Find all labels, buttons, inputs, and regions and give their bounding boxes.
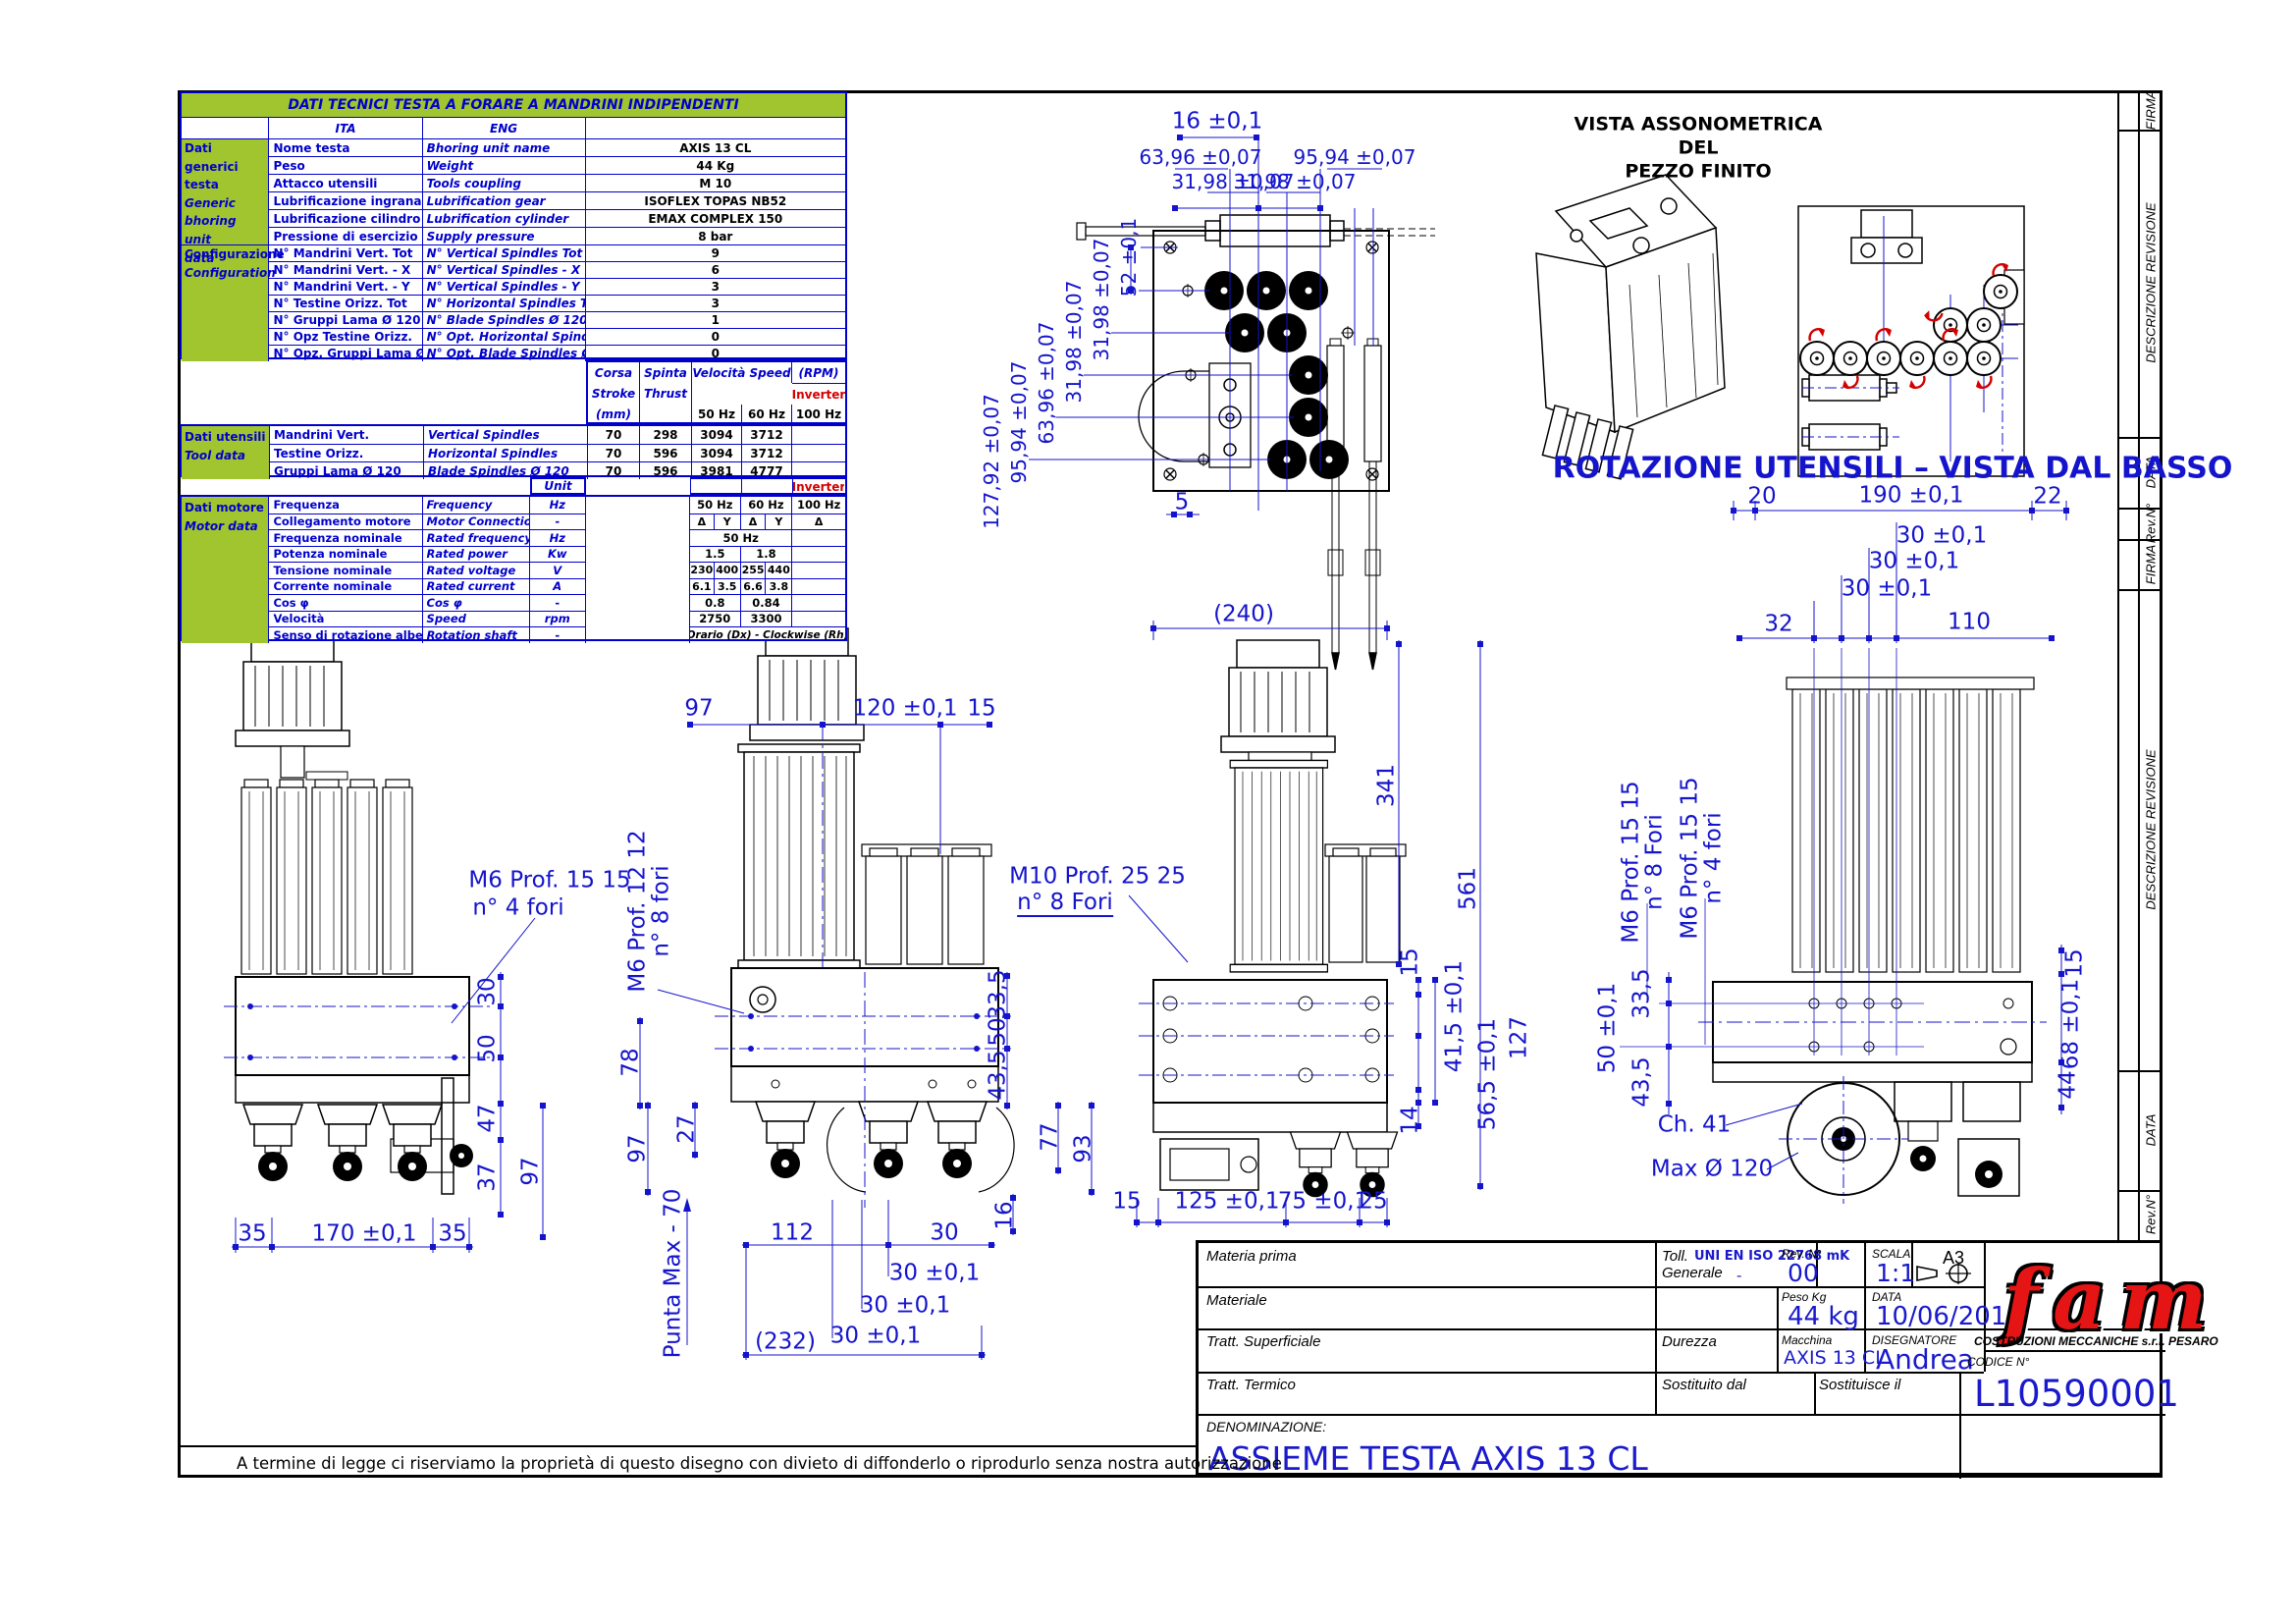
strip-label-descrizione: DESCRIZIONE REVISIONE [2144, 749, 2159, 909]
dim-label: 97 [684, 698, 713, 721]
strip-line [2117, 1070, 2163, 1072]
toll-value: UNI EN ISO 22768 mK [1694, 1249, 1849, 1264]
table-cell: EMAX COMPLEX 150 [586, 209, 845, 227]
hole-note: n° 8 fori [651, 865, 673, 956]
peso-value: 44 kg [1788, 1302, 1859, 1331]
dim-label: 93 [1073, 1134, 1095, 1163]
hole-note: M6 Prof. 15 15 [468, 870, 630, 893]
dim-label: 31,98 ±0,07 [1092, 239, 1111, 361]
hdr-100hz: 100 Hz [792, 405, 845, 424]
dim-label: 75 ±0,1 [1278, 1191, 1368, 1214]
dim-label: 63,96 ±0,07 [1140, 147, 1262, 167]
rev-value: 00 [1788, 1259, 1819, 1287]
dim-label: 97 [627, 1134, 650, 1163]
table-cell: 60 Hz [741, 497, 793, 514]
table-cell: N° Vertical Spindles - X [423, 261, 586, 278]
table-cell: 3094 [692, 444, 742, 461]
table-cell: 0 [586, 328, 845, 345]
table-cell: Frequenza [269, 497, 422, 514]
table-cell: 50 Hz [689, 529, 792, 546]
dim-label: 35 [238, 1223, 266, 1246]
dim-label: 32 [1764, 614, 1792, 636]
table-cell: 3.8 [766, 578, 792, 595]
table-cell: N° Opz. Gruppi Lama Ø 120 [269, 345, 422, 361]
table-cell: Rated power [423, 546, 530, 563]
dim-label: 16 [994, 1201, 1017, 1229]
col-header-ita: ITA [269, 117, 422, 138]
table-cell: Lubrification gear [423, 191, 586, 209]
field-materia-prima: Materia prima [1206, 1248, 1297, 1265]
table-cell: Attacco utensili [269, 174, 422, 191]
table-cell [182, 117, 269, 138]
strip-line [2138, 90, 2140, 1240]
dim-label: (232) [755, 1331, 816, 1354]
table-cell: Collegamento motore [269, 514, 422, 530]
dim-label: 95,94 ±0,07 [1009, 361, 1029, 484]
table-title: DATI TECNICI TESTA A FORARE A MANDRINI I… [182, 93, 845, 117]
hdr-speed: Velocità Speed [692, 361, 792, 383]
table-cell: Rated frequency [423, 529, 530, 546]
macchina-value: AXIS 13 CL [1784, 1347, 1886, 1369]
table-cell: 1.5 [689, 546, 741, 563]
table-cell: rpm [530, 611, 586, 627]
table-cell: 440 [766, 562, 792, 578]
hdr-60hz: 60 Hz [742, 405, 792, 424]
disclaimer-box: A termine di legge ci riserviamo la prop… [178, 1445, 1196, 1478]
table-cell: 255 [741, 562, 767, 578]
table-cell [792, 426, 845, 444]
strip-line [2117, 90, 2119, 1240]
dim-label: Max Ø 120 [1651, 1159, 1773, 1181]
table-cell: 6.6 [741, 578, 767, 595]
dim-label: 15 [967, 698, 995, 721]
table-cell [692, 383, 742, 405]
table-cell: 6.1 [689, 578, 715, 595]
table-cell: 6 [586, 261, 845, 278]
table-cell: A [530, 578, 586, 595]
table-cell: 230 [689, 562, 715, 578]
table-cell: 596 [640, 461, 692, 479]
table-cell: 70 [588, 426, 640, 444]
strip-line [2117, 1190, 2163, 1192]
table-cell [742, 383, 792, 405]
dim-label: 33,5 [1631, 968, 1654, 1018]
iso-title-3: PEZZO FINITO [1625, 163, 1771, 182]
table-cell [792, 546, 845, 563]
strip-line [2117, 437, 2163, 439]
table-cell: Hz [530, 497, 586, 514]
dim-label: 30 [477, 977, 500, 1005]
dim-label: 27 [676, 1114, 699, 1143]
table-cell [792, 611, 845, 627]
table-cell: Nome testa [269, 138, 422, 156]
field-sostituito-dal: Sostituito dal [1662, 1377, 1746, 1393]
iso-title-1: VISTA ASSONOMETRICA [1575, 116, 1823, 135]
disclaimer-text: A termine di legge ci riserviamo la prop… [237, 1454, 1282, 1473]
scala-value: 1:1 [1876, 1259, 1915, 1287]
hole-note: M6 Prof. 15 15 [1621, 781, 1643, 943]
hole-note: M6 Prof. 15 15 [1680, 777, 1702, 939]
table-cell: 0.84 [741, 594, 793, 611]
table-cell: Δ [741, 514, 767, 530]
group-label-config: ConfigurazioneConfiguration [182, 244, 266, 282]
table-cell: - [530, 594, 586, 611]
dim-label: 52 ±0,1 [1119, 218, 1139, 297]
table-cell: Corrente nominale [269, 578, 422, 595]
table-cell: Y [715, 514, 741, 530]
strip-line [2117, 589, 2163, 591]
dim-label: 190 ±0,1 [1858, 485, 1963, 508]
table-cell: Kw [530, 546, 586, 563]
table-cell: Hz [530, 529, 586, 546]
dim-label: 30 ±0,1 [830, 1326, 921, 1348]
dim-label: 30 ±0,1 [889, 1263, 980, 1285]
dim-label: 41,5 ±0,1 [1444, 960, 1467, 1072]
table-cell: Testine Orizz. [270, 444, 424, 461]
drawing-sheet: FIRMA DESCRIZIONE REVISIONE DATA Rev.N° … [0, 0, 2296, 1624]
table-cell [792, 562, 845, 578]
strip-label-data: DATA [2144, 1114, 2159, 1147]
tool-data: Mandrini Vert.Vertical Spindles702983094… [180, 424, 847, 477]
table-cell [792, 594, 845, 611]
table-cell: 1.8 [741, 546, 793, 563]
hole-note: n° 8 Fori [1017, 892, 1113, 917]
table-cell: N° Opz Testine Orizz. [269, 328, 422, 345]
dim-label: 112 [771, 1222, 814, 1245]
field-denominazione-label: DENOMINAZIONE: [1206, 1419, 1326, 1435]
table-cell: Frequency [423, 497, 530, 514]
table-cell: N° Gruppi Lama Ø 120 [269, 311, 422, 328]
table-cell: 0.8 [689, 594, 741, 611]
table-cell: 70 [588, 461, 640, 479]
dim-label: 31,98 ±0,07 [1064, 281, 1084, 404]
dim-label: 30 ±0,1 [1842, 578, 1932, 601]
table-cell: N° Vertical Spindles - Y [423, 278, 586, 295]
table-cell: Motor Connection [423, 514, 530, 530]
dim-label: Ch. 41 [1658, 1114, 1732, 1137]
strip-label-firma: FIRMA [2144, 90, 2159, 130]
table-cell: Pressione di esercizio [269, 227, 422, 244]
dim-label: 5 [1175, 492, 1190, 514]
dim-label: 35 [438, 1223, 466, 1246]
table-cell: Horizontal Spindles [424, 444, 588, 461]
table-cell: Y [766, 514, 792, 530]
table-cell: Rated voltage [423, 562, 530, 578]
dim-label: 22 [2033, 486, 2061, 509]
hole-note: M10 Prof. 25 25 [1009, 866, 1186, 889]
table-cell: Speed [423, 611, 530, 627]
dim-label: 30 [930, 1222, 958, 1245]
table-cell: 3094 [692, 426, 742, 444]
table-cell [792, 444, 845, 461]
table-cell: Gruppi Lama Ø 120 [270, 461, 424, 479]
dim-label: 97 [520, 1157, 543, 1185]
table-cell: Potenza nominale [269, 546, 422, 563]
table-cell: Frequenza nominale [269, 529, 422, 546]
dim-label: 56,5 ±0,1 [1477, 1018, 1500, 1130]
hdr-rpm: (RPM) [792, 361, 845, 383]
table-cell: N° Opt. Blade Spindles Ø 120 [423, 345, 586, 361]
dim-label: 16 ±0,1 [1172, 111, 1262, 134]
toll-dash: - [1736, 1267, 1741, 1284]
strip-label-firma: FIRMA [2144, 545, 2159, 584]
dim-label: 30 ±0,1 [1896, 525, 1987, 548]
table-cell: Cos φ [423, 594, 530, 611]
dim-label: 50 ±0,1 [1597, 983, 1620, 1073]
strip-label-rev: Rev.N° [2144, 1195, 2159, 1234]
field-tratt-termico: Tratt. Termico [1206, 1377, 1296, 1393]
field-codice: CODICE N° [1967, 1355, 2029, 1369]
table-cell: Tensione nominale [269, 562, 422, 578]
table-cell [742, 479, 793, 495]
table-cell: 400 [715, 562, 741, 578]
table-cell: Lubrificazione cilindro [269, 209, 422, 227]
dim-label: 170 ±0,1 [311, 1223, 416, 1246]
table-cell: 2750 [689, 611, 741, 627]
table-cell: 3 [586, 295, 845, 311]
strip-label-rev: Rev.N° [2144, 504, 2159, 543]
table-cell: 9 [586, 244, 845, 261]
dim-label: 43,5 [988, 1050, 1010, 1100]
hole-note: M6 Prof. 12 12 [627, 830, 650, 992]
dim-label: 341 [1376, 764, 1399, 807]
field-macchina: Macchina [1782, 1333, 1832, 1347]
table-cell: N° Vertical Spindles Tot [423, 244, 586, 261]
hdr-mm: (mm) [588, 405, 640, 424]
table-cell: N° Mandrini Vert. Tot [269, 244, 422, 261]
motor-data: FrequenzaFrequencyHz50 Hz60 Hz100 Hz Col… [180, 495, 847, 641]
dim-label: 25 [1359, 1191, 1387, 1214]
dim-label: 50 [477, 1034, 500, 1062]
table-cell: 3712 [742, 426, 792, 444]
table-cell: ISOFLEX TOPAS NB52 [586, 191, 845, 209]
hdr-thrust: Thrust [640, 383, 692, 405]
table-cell: 100 Hz [792, 497, 845, 514]
table-cell: 596 [640, 444, 692, 461]
dim-label: 20 [1747, 486, 1776, 509]
table-cell: - [530, 626, 586, 643]
dim-label: 43,5 [1631, 1056, 1654, 1107]
table-cell: N° Opt. Horizontal Spindles [423, 328, 586, 345]
codice-value: L10590001 [1974, 1373, 2179, 1415]
dim-label: 15 [1400, 947, 1422, 976]
dim-label: 37 [477, 1163, 500, 1191]
dim-label: 110 [1948, 612, 1991, 634]
table-cell: 298 [640, 426, 692, 444]
table-cell: - [530, 514, 586, 530]
hole-note: n° 8 Fori [1644, 814, 1667, 910]
data-value: 10/06/2010 [1876, 1302, 2023, 1331]
hdr-50hz: 50 Hz [692, 405, 742, 424]
dim-label: 15 [1112, 1191, 1141, 1214]
hdr-stroke: Stroke [588, 383, 640, 405]
table-cell: 3 [586, 278, 845, 295]
table-cell: N° Testine Orizz. Tot [269, 295, 422, 311]
hdr-n [640, 405, 692, 424]
title-block: Materia prima Materiale Tratt. Superfici… [1196, 1240, 2163, 1476]
table-cell: 3712 [742, 444, 792, 461]
table-cell: Cos φ [269, 594, 422, 611]
strip-label-descrizione: DESCRIZIONE REVISIONE [2144, 202, 2159, 362]
rotation-view-title: ROTAZIONE UTENSILI – VISTA DAL BASSO [1553, 452, 2233, 486]
table-cell: Lubrification cylinder [423, 209, 586, 227]
table-cell: Weight [423, 156, 586, 174]
dim-label: 44 [2057, 1070, 2080, 1099]
dim-label: 15 [2064, 948, 2087, 977]
projection-symbol-icon [1915, 1263, 1980, 1284]
dim-label: 50 [988, 1017, 1010, 1046]
table-cell: N° Blade Spindles Ø 120 [423, 311, 586, 328]
group-label-motor: Dati motoreMotor data [182, 497, 266, 535]
table-cell: 50 Hz [689, 497, 741, 514]
field-materiale: Materiale [1206, 1292, 1267, 1309]
dim-label: 31,98 ±0,07 [1234, 172, 1357, 191]
dim-label: 68 ±0,1 [2060, 979, 2083, 1069]
table-cell [792, 578, 845, 595]
dim-label: (240) [1213, 604, 1274, 626]
table-cell: Δ [792, 514, 845, 530]
iso-title-2: DEL [1679, 139, 1719, 158]
table-cell: Vertical Spindles [424, 426, 588, 444]
dim-label: 78 [620, 1048, 643, 1076]
table-cell: Senso di rotazione albero [269, 626, 422, 643]
table-cell: Δ [689, 514, 715, 530]
dim-label: 561 [1458, 867, 1480, 910]
col-header-eng: ENG [423, 117, 586, 138]
field-toll-generale: Generale [1662, 1265, 1723, 1281]
table-cell: 70 [588, 444, 640, 461]
hdr-corsa: Corsa [588, 361, 640, 383]
dim-label: 125 ±0,1 [1174, 1191, 1279, 1214]
motor-inverter: Inverter [793, 479, 844, 495]
table-cell [691, 479, 742, 495]
dim-label: 120 ±0,1 [852, 698, 957, 721]
table-cell: 44 Kg [586, 156, 845, 174]
company-name: COSTRUZIONI MECCANICHE s.r.l. PESARO [1974, 1334, 2165, 1348]
table-cell: Bhoring unit name [423, 138, 586, 156]
table-cell: 3.5 [715, 578, 741, 595]
tool-header: Corsa Spinta Velocità Speed (RPM) Stroke… [586, 359, 847, 424]
strip-line [2117, 130, 2163, 132]
field-durezza: Durezza [1662, 1333, 1717, 1350]
table-cell: Peso [269, 156, 422, 174]
dim-label: 77 [1040, 1122, 1062, 1151]
hdr-spinta: Spinta [640, 361, 692, 383]
field-tratt-superficiale: Tratt. Superficiale [1206, 1333, 1320, 1350]
table-cell: Supply pressure [423, 227, 586, 244]
dim-label: 33,5 [988, 969, 1010, 1019]
table-cell: Velocità [269, 611, 422, 627]
hole-note: n° 4 fori [472, 897, 563, 920]
table-cell: Lubrificazione ingranaggi [269, 191, 422, 209]
field-toll: Toll. [1662, 1248, 1688, 1265]
table-cell: 3300 [741, 611, 793, 627]
dim-label: 47 [477, 1104, 500, 1132]
table-cell: N° Mandrini Vert. - X [269, 261, 422, 278]
dim-label: 14 [1400, 1106, 1422, 1134]
field-sostituisce-il: Sostituisce il [1819, 1377, 1900, 1393]
table-cell: AXIS 13 CL [586, 138, 845, 156]
table-cell: Orario (Dx) - Clockwise (Rh) [689, 626, 845, 643]
table-cell: Rotation shaft [423, 626, 530, 643]
table-cell: V [530, 562, 586, 578]
dim-label: 127,92 ±0,07 [982, 394, 1001, 529]
hole-note: n° 4 fori [1703, 812, 1726, 903]
hdr-inverter: Inverter [792, 383, 845, 405]
table-cell [792, 529, 845, 546]
tech-data-table: DATI TECNICI TESTA A FORARE A MANDRINI I… [180, 91, 847, 359]
dim-label: 30 ±0,1 [860, 1295, 950, 1318]
dim-label: 127 [1509, 1016, 1531, 1059]
table-cell: M 10 [586, 174, 845, 191]
dim-label: 30 ±0,1 [1869, 551, 1959, 573]
table-cell [586, 117, 845, 138]
disegnatore-value: Andrea [1876, 1343, 1974, 1376]
group-label-tool: Dati utensiliTool data [182, 426, 266, 464]
hdr-unit: Unit [532, 479, 584, 493]
dim-label: Punta Max - 70 [663, 1189, 685, 1359]
table-cell: Mandrini Vert. [270, 426, 424, 444]
table-cell: 1 [586, 311, 845, 328]
table-cell: 8 bar [586, 227, 845, 244]
dim-label: 63,96 ±0,07 [1037, 322, 1056, 445]
table-cell: Rated current [423, 578, 530, 595]
dim-label: 95,94 ±0,07 [1294, 147, 1416, 167]
table-cell: Tools coupling [423, 174, 586, 191]
table-cell: N° Horizontal Spindles Tot [423, 295, 586, 311]
table-cell: N° Mandrini Vert. - Y [269, 278, 422, 295]
